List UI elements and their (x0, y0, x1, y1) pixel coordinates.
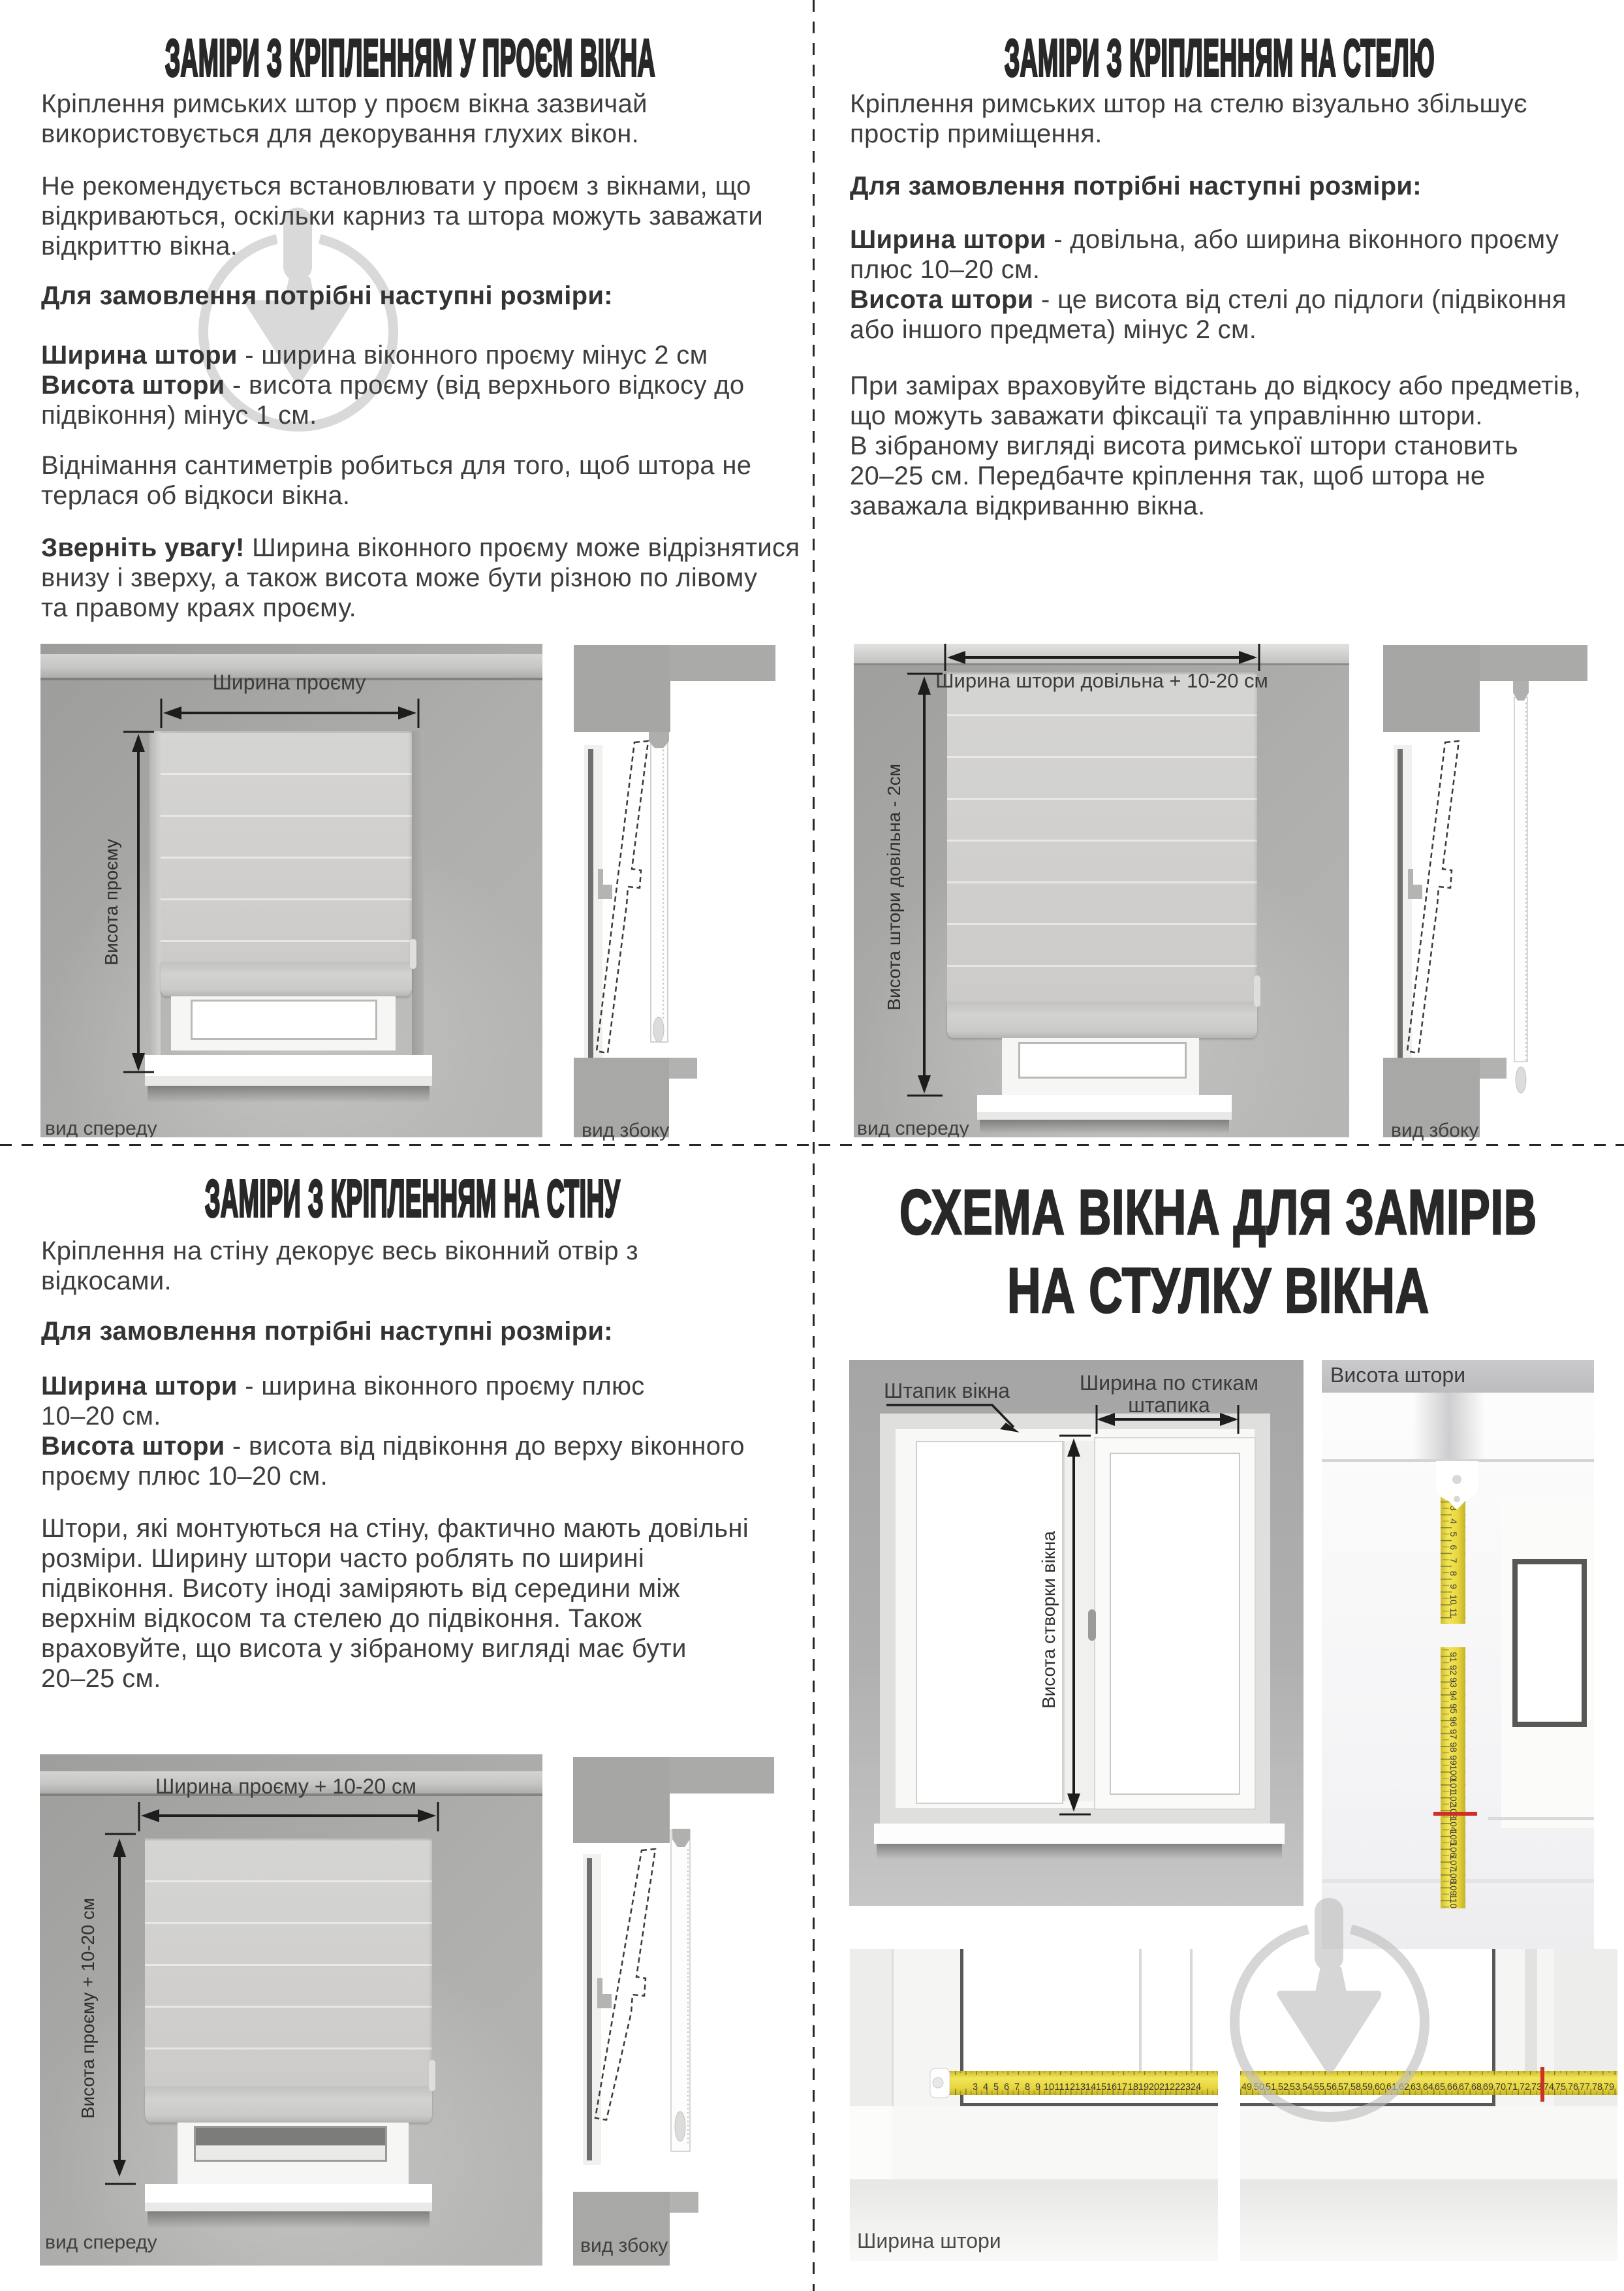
svg-text:23: 23 (1180, 2082, 1191, 2093)
svg-text:7: 7 (1448, 1558, 1459, 1563)
svg-text:96: 96 (1448, 1716, 1459, 1727)
svg-text:71: 71 (1507, 2082, 1518, 2093)
svg-text:9: 9 (1448, 1584, 1459, 1589)
svg-text:15: 15 (1096, 2082, 1106, 2093)
svg-text:8: 8 (1448, 1571, 1459, 1576)
svg-text:66: 66 (1447, 2082, 1458, 2093)
svg-text:5: 5 (1448, 1532, 1459, 1537)
svg-text:77: 77 (1580, 2082, 1590, 2093)
svg-text:78: 78 (1592, 2082, 1602, 2093)
svg-text:68: 68 (1471, 2082, 1482, 2093)
svg-text:94: 94 (1448, 1690, 1459, 1701)
svg-text:4: 4 (983, 2082, 988, 2093)
svg-text:69: 69 (1483, 2082, 1493, 2093)
svg-text:3: 3 (973, 2082, 978, 2093)
svg-text:11: 11 (1448, 1608, 1459, 1618)
svg-text:8: 8 (1025, 2082, 1030, 2093)
svg-text:13: 13 (1075, 2082, 1085, 2093)
svg-text:75: 75 (1555, 2082, 1566, 2093)
svg-text:93: 93 (1448, 1677, 1459, 1688)
svg-text:98: 98 (1448, 1742, 1459, 1752)
svg-text:10: 10 (1448, 1594, 1459, 1605)
svg-text:21: 21 (1159, 2082, 1170, 2093)
svg-text:91: 91 (1448, 1652, 1459, 1662)
svg-text:72: 72 (1520, 2082, 1530, 2093)
svg-text:6: 6 (1004, 2082, 1009, 2093)
svg-text:20: 20 (1149, 2082, 1159, 2093)
svg-text:4: 4 (1448, 1519, 1459, 1524)
svg-text:19: 19 (1138, 2082, 1149, 2093)
svg-text:74: 74 (1544, 2082, 1554, 2093)
svg-text:22: 22 (1170, 2082, 1180, 2093)
svg-text:97: 97 (1448, 1729, 1459, 1739)
svg-text:18: 18 (1128, 2082, 1138, 2093)
svg-text:110: 110 (1448, 1894, 1459, 1909)
svg-text:12: 12 (1065, 2082, 1075, 2093)
svg-text:5: 5 (993, 2082, 999, 2093)
svg-text:92: 92 (1448, 1665, 1459, 1675)
svg-text:16: 16 (1106, 2082, 1117, 2093)
svg-text:70: 70 (1495, 2082, 1506, 2093)
svg-text:76: 76 (1568, 2082, 1578, 2093)
svg-text:6: 6 (1448, 1545, 1459, 1550)
svg-text:79: 79 (1604, 2082, 1614, 2093)
svg-text:7: 7 (1014, 2082, 1020, 2093)
svg-text:17: 17 (1117, 2082, 1127, 2093)
svg-text:73: 73 (1531, 2082, 1542, 2093)
svg-text:9: 9 (1035, 2082, 1040, 2093)
svg-text:11: 11 (1054, 2082, 1064, 2093)
svg-text:99: 99 (1448, 1755, 1459, 1765)
svg-text:24: 24 (1191, 2082, 1201, 2093)
svg-text:10: 10 (1044, 2082, 1054, 2093)
svg-text:14: 14 (1085, 2082, 1096, 2093)
svg-text:95: 95 (1448, 1703, 1459, 1714)
svg-text:67: 67 (1459, 2082, 1469, 2093)
